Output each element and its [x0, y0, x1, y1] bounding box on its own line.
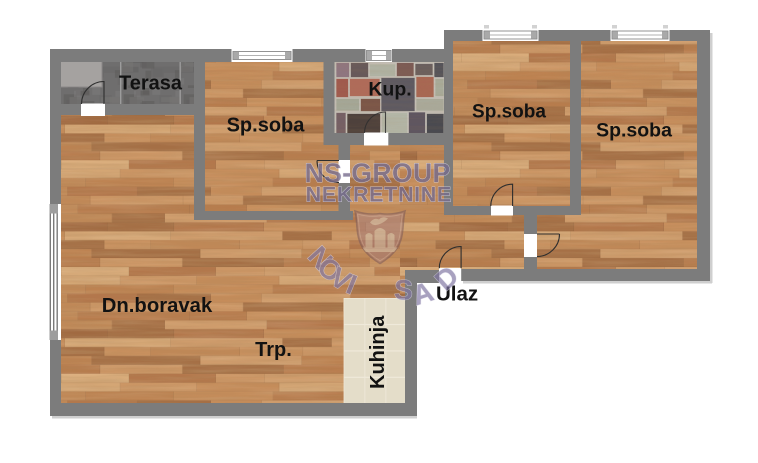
svg-text:Trp.: Trp.: [255, 339, 292, 361]
svg-text:Terasa: Terasa: [119, 72, 183, 94]
svg-text:Sp.soba: Sp.soba: [472, 102, 546, 123]
svg-text:Sp.soba: Sp.soba: [227, 115, 306, 137]
svg-text:Kup.: Kup.: [368, 78, 411, 100]
svg-text:Kuhinja: Kuhinja: [367, 315, 389, 389]
svg-text:Dn.boravak: Dn.boravak: [102, 295, 213, 317]
svg-text:Sp.soba: Sp.soba: [596, 120, 672, 142]
svg-text:NEKRETNINE: NEKRETNINE: [306, 183, 452, 207]
